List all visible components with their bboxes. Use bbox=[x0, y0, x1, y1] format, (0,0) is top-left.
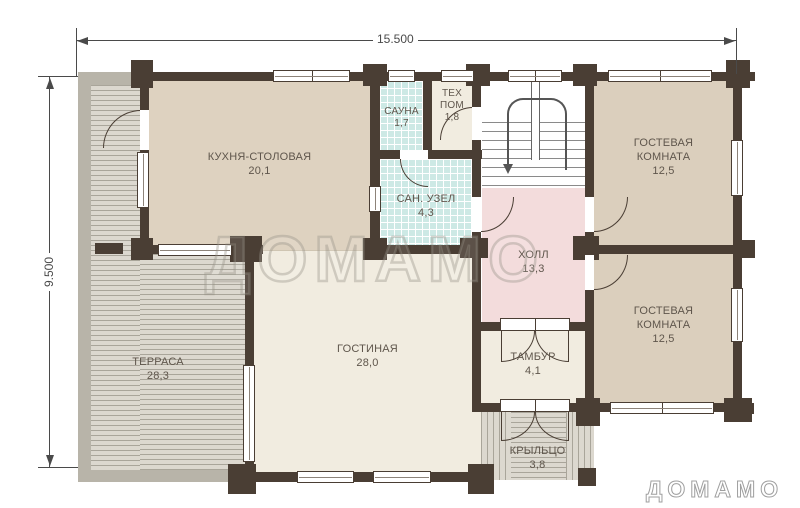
room-area: 12,5 bbox=[594, 164, 733, 178]
double-door-hall-vestibule bbox=[500, 318, 570, 331]
log-post bbox=[576, 398, 600, 426]
door-gap-hall-guest2 bbox=[585, 255, 594, 290]
log-post bbox=[573, 64, 597, 86]
room-area: 3,8 bbox=[481, 458, 594, 472]
window-sauna-top bbox=[388, 70, 415, 82]
dim-arrow-up-icon bbox=[46, 78, 54, 89]
room-name: КУХНЯ-СТОЛОВАЯ bbox=[149, 150, 370, 164]
label-hall: ХОЛЛ 13,3 bbox=[482, 248, 585, 276]
log-post bbox=[742, 72, 755, 81]
room-name: КОМНАТА bbox=[594, 318, 733, 332]
window-living-south-1 bbox=[297, 471, 354, 483]
window-guest1-top bbox=[608, 70, 712, 82]
room-name: САН. УЗЕЛ bbox=[380, 192, 472, 206]
stair-tread bbox=[482, 185, 585, 186]
door-gap-sauna-bathroom bbox=[400, 150, 428, 159]
room-name: ХОЛЛ bbox=[482, 248, 585, 262]
log-post bbox=[131, 60, 153, 88]
dim-arrow-left-icon bbox=[77, 37, 88, 45]
label-porch: КРЫЛЬЦО 3,8 bbox=[481, 444, 594, 472]
window-living-west bbox=[243, 365, 255, 462]
log-post bbox=[363, 64, 387, 86]
room-name: КРЫЛЬЦО bbox=[481, 444, 594, 458]
terrace-bottom-band bbox=[78, 470, 235, 482]
stair-arrowhead-icon bbox=[503, 164, 513, 174]
floor-plan: КУХНЯ-СТОЛОВАЯ 20,1 САУНА 1,7 ТЕХ ПОМ 1,… bbox=[0, 0, 800, 508]
room-name: ГОСТЕВАЯ bbox=[594, 304, 733, 318]
dim-tick bbox=[38, 76, 78, 77]
dim-tick bbox=[38, 467, 78, 468]
stair-tread bbox=[482, 176, 585, 177]
terrace-left-band bbox=[78, 72, 91, 482]
window-kitchen-west bbox=[137, 152, 149, 208]
log-post bbox=[733, 240, 755, 258]
log-post bbox=[742, 403, 754, 414]
double-door-vestibule-porch bbox=[500, 399, 570, 412]
wall-sauna-west bbox=[370, 72, 380, 254]
room-name: САУНА bbox=[376, 106, 427, 118]
room-name: ТЕХ bbox=[430, 88, 474, 100]
window-kitchen-top bbox=[273, 70, 350, 82]
brand-logo: ДОМАМО bbox=[646, 476, 783, 503]
room-area: 20,1 bbox=[149, 164, 370, 178]
room-area: 4,1 bbox=[481, 364, 585, 378]
window-kitchen-terrace bbox=[158, 244, 232, 256]
label-kitchen: КУХНЯ-СТОЛОВАЯ 20,1 bbox=[149, 150, 370, 178]
window-living-south-2 bbox=[373, 471, 431, 483]
room-area: 28,0 bbox=[254, 356, 481, 370]
label-sauna: САУНА 1,7 bbox=[376, 106, 427, 130]
room-name: ГОСТЕВАЯ bbox=[594, 136, 733, 150]
window-stair-top bbox=[508, 70, 562, 82]
window-tech-top bbox=[441, 70, 474, 82]
room-name: ТАМБУР bbox=[481, 350, 585, 364]
label-vestibule: ТАМБУР 4,1 bbox=[481, 350, 585, 378]
log-post bbox=[228, 464, 256, 494]
door-gap-hall-guest1 bbox=[585, 197, 594, 232]
dim-tick bbox=[736, 28, 737, 74]
room-area: 4,3 bbox=[380, 206, 472, 220]
label-terrace: ТЕРРАСА 28,3 bbox=[78, 355, 238, 383]
room-name: ТЕРРАСА bbox=[78, 355, 238, 369]
log-post bbox=[230, 236, 262, 262]
dim-width-text: 15.500 bbox=[373, 32, 418, 46]
dim-arrow-down-icon bbox=[46, 455, 54, 466]
label-living: ГОСТИНАЯ 28,0 bbox=[254, 342, 481, 370]
log-post bbox=[95, 243, 123, 254]
dim-height-text: 9.500 bbox=[42, 253, 56, 291]
window-guest2-south bbox=[610, 402, 714, 414]
log-post bbox=[131, 238, 153, 260]
door-gap-bathroom-hall bbox=[472, 197, 481, 232]
wall-guestrooms-divider bbox=[585, 245, 742, 254]
label-bathroom: САН. УЗЕЛ 4,3 bbox=[380, 192, 472, 220]
dim-arrow-right-icon bbox=[724, 37, 735, 45]
label-guest2: ГОСТЕВАЯ КОМНАТА 12,5 bbox=[594, 304, 733, 346]
room-area: 13,3 bbox=[482, 262, 585, 276]
room-area: 28,3 bbox=[78, 369, 238, 383]
kitchen-living-boundary bbox=[263, 250, 370, 251]
wall-living-south bbox=[245, 472, 490, 482]
room-name: КОМНАТА bbox=[594, 150, 733, 164]
log-post bbox=[363, 238, 387, 260]
label-guest1: ГОСТЕВАЯ КОМНАТА 12,5 bbox=[594, 136, 733, 178]
dim-tick bbox=[76, 28, 77, 76]
label-tech: ТЕХ ПОМ 1,8 bbox=[430, 88, 474, 124]
room-area: 12,5 bbox=[594, 332, 733, 346]
room-area: 1,7 bbox=[376, 118, 427, 130]
room-name: ГОСТИНАЯ bbox=[254, 342, 481, 356]
door-gap-kitchen-terrace bbox=[140, 110, 149, 150]
stair-direction-arrow bbox=[507, 98, 567, 170]
room-name: ПОМ bbox=[430, 100, 474, 112]
room-area: 1,8 bbox=[430, 112, 474, 124]
